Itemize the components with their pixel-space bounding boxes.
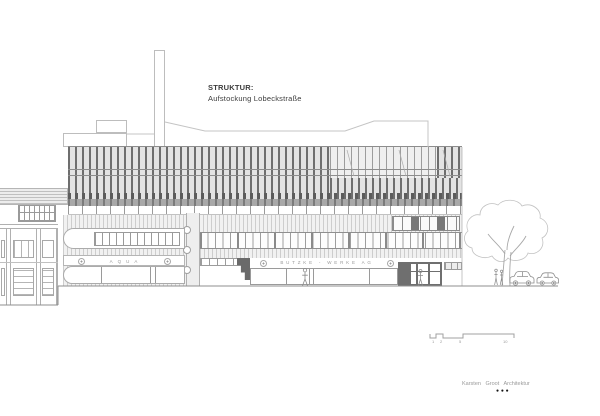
shopfront-mullion (313, 269, 314, 284)
architect-credit: Karsten Groot Architektur (462, 381, 530, 387)
roof-structure-left-upper (96, 120, 127, 133)
car-right (537, 273, 559, 285)
neighbour-window (42, 240, 54, 258)
company-logo-icon (260, 260, 267, 267)
upper-floor-fins-left (68, 147, 330, 199)
elevation-drawing-canvas: BUTZKE - WERKE AG AQUA (0, 0, 600, 416)
shopfront-mullion (369, 269, 370, 284)
aqua-sign-band: AQUA (63, 255, 185, 266)
cars-drawing (506, 267, 562, 287)
aqua-band-mullion (150, 267, 151, 283)
car-left (510, 272, 534, 286)
pier (56, 229, 58, 305)
dark-window-pane (437, 217, 445, 230)
annotation-title-block: STRUKTUR: Aufstockung Lobeckstraße (208, 82, 302, 104)
pier (40, 229, 41, 305)
shopfront-windows (250, 268, 398, 285)
company-logo-icon (164, 258, 171, 265)
spandrel-band-lower (200, 249, 462, 258)
roof-structure-left-lower (63, 133, 127, 147)
attic-window-row-right (392, 216, 460, 231)
person-figure-storefront (416, 269, 425, 287)
aqua-sign: AQUA (88, 259, 164, 264)
upper-floor-slab-band (68, 199, 462, 206)
neighbour-window (42, 268, 54, 296)
pier (6, 229, 7, 305)
upper-floor-glazing-right (330, 147, 437, 178)
chimney (154, 50, 165, 148)
pier (36, 229, 37, 305)
upper-floor-rail-2 (68, 175, 462, 176)
pier (10, 229, 11, 305)
neighbour-window (13, 268, 34, 296)
company-logo-icon (387, 260, 394, 267)
storefront-door-dark (400, 264, 411, 284)
aqua-ground-band (63, 266, 185, 284)
aqua-window-band (63, 228, 185, 249)
neighbour-wall (0, 229, 58, 305)
person-figure-passage (300, 268, 310, 287)
aqua-window-strip (94, 232, 180, 246)
neighbour-window (1, 268, 5, 296)
person-figures-tree (494, 269, 503, 285)
butzke-sign-band: BUTZKE - WERKE AG (250, 258, 398, 268)
neighbour-window (1, 240, 5, 258)
aqua-band-mullion (101, 267, 102, 283)
neighbour-louver-band (0, 188, 68, 205)
storefront-mullion (428, 264, 430, 284)
roof-terrace-railing (68, 206, 462, 215)
scale-label-10: 10 (503, 339, 507, 344)
scale-label-5: 5 (459, 339, 461, 344)
annotation-title: STRUKTUR: (208, 82, 302, 93)
neighbour-window (13, 240, 34, 258)
butzke-werke-sign: BUTZKE - WERKE AG (270, 260, 384, 265)
scale-label-1: 1 (432, 339, 434, 344)
first-floor-window-band (200, 232, 462, 249)
upper-floor-rail-1 (68, 169, 462, 170)
company-logo-icon (78, 258, 85, 265)
credit-dots-icon: ●●● (496, 388, 510, 394)
aqua-band-mullion (155, 267, 156, 283)
neighbour-window-grid (18, 205, 56, 222)
annotation-subtitle: Aufstockung Lobeckstraße (208, 93, 302, 104)
shopfront-mullion (286, 269, 287, 284)
upper-floor-fins-corner (437, 147, 462, 178)
dark-window-pane (411, 217, 419, 230)
scale-label-2: 2 (440, 339, 442, 344)
floor-slab-line (0, 262, 58, 263)
